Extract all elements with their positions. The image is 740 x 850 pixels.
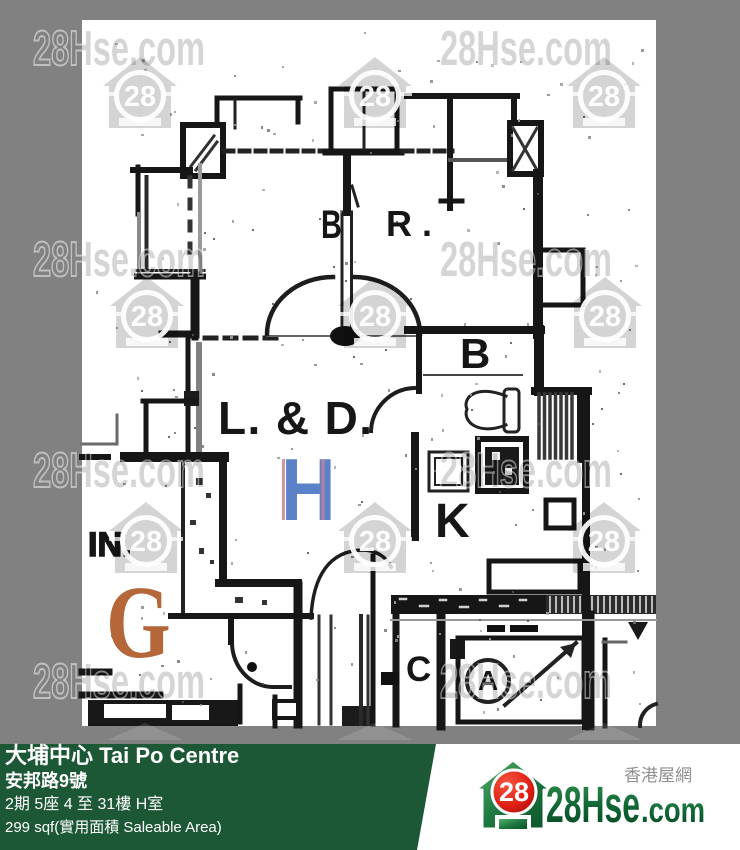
svg-text:.com: .com: [641, 791, 705, 830]
svg-text:28Hse: 28Hse: [546, 776, 640, 833]
svg-text:28: 28: [499, 777, 529, 807]
